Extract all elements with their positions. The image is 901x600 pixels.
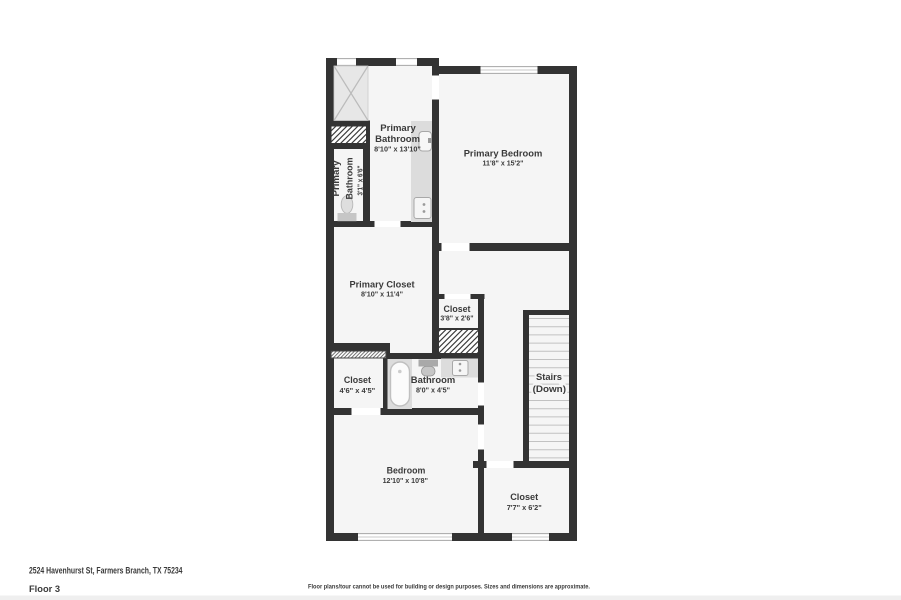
svg-text:Floor plans/tour cannot be use: Floor plans/tour cannot be used for buil… (308, 583, 590, 590)
svg-text:8'10" x 13'10": 8'10" x 13'10" (374, 144, 421, 153)
svg-text:Floor 3: Floor 3 (29, 584, 60, 594)
svg-text:8'10" x 11'4": 8'10" x 11'4" (361, 290, 403, 299)
svg-text:2524 Havenhurst St, Farmers Br: 2524 Havenhurst St, Farmers Branch, TX 7… (29, 566, 183, 576)
svg-text:3'1" x 6'6": 3'1" x 6'6" (356, 166, 365, 196)
svg-text:12'10" x 10'8": 12'10" x 10'8" (383, 476, 429, 485)
svg-text:3'8" x 2'6": 3'8" x 2'6" (440, 314, 473, 323)
svg-text:Bathroom: Bathroom (375, 134, 420, 145)
svg-text:Closet: Closet (444, 304, 471, 314)
svg-text:7'7" x 6'2": 7'7" x 6'2" (507, 503, 542, 512)
svg-text:Primary: Primary (331, 160, 342, 197)
svg-text:Stairs: Stairs (536, 372, 562, 383)
svg-text:Bathroom: Bathroom (344, 158, 355, 200)
svg-text:(Down): (Down) (533, 384, 566, 395)
svg-text:Closet: Closet (344, 375, 372, 386)
svg-text:4'6" x 4'5": 4'6" x 4'5" (340, 386, 376, 395)
svg-text:8'0" x 4'5": 8'0" x 4'5" (416, 385, 450, 394)
svg-text:11'8" x 15'2": 11'8" x 15'2" (483, 158, 524, 167)
svg-text:Primary: Primary (380, 123, 416, 134)
svg-text:Closet: Closet (510, 492, 539, 503)
